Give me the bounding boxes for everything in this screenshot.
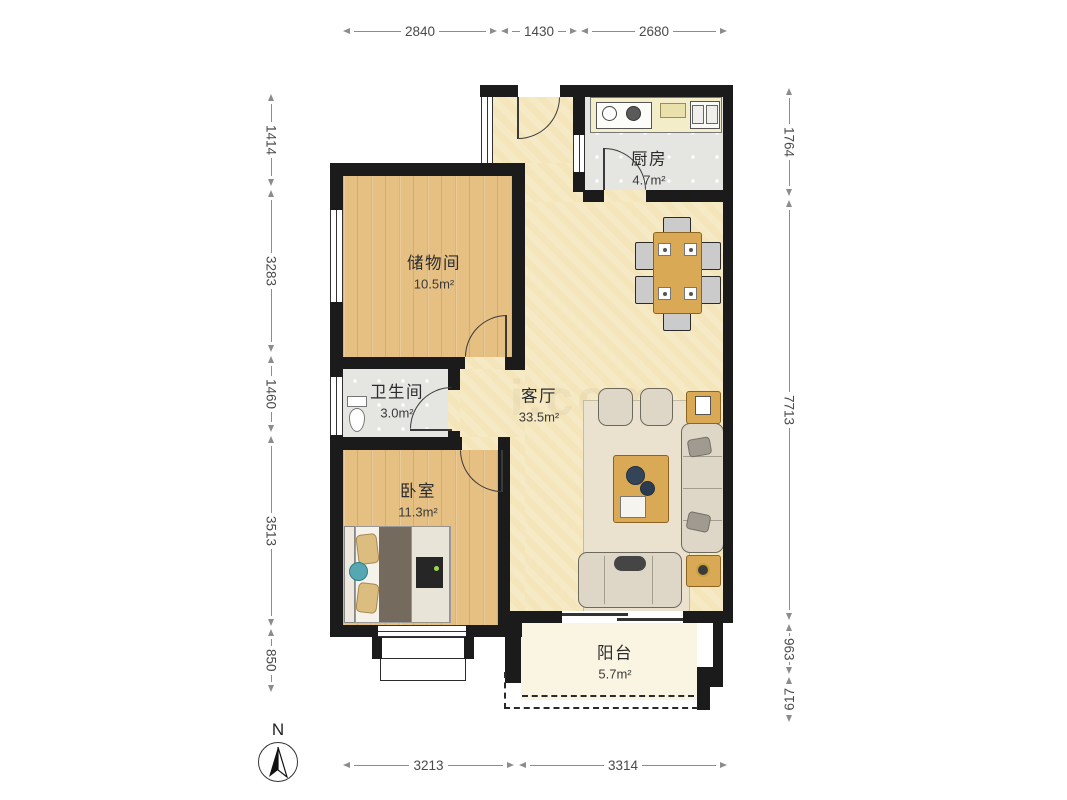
- arrow-up-icon: [786, 200, 792, 207]
- hallway-floor: [510, 437, 525, 611]
- wall: [512, 163, 525, 370]
- dimension-value: 1414: [264, 125, 279, 155]
- bay-window-line: [382, 658, 464, 659]
- wall: [330, 369, 343, 377]
- wall: [330, 163, 512, 176]
- dimension-value: 1430: [524, 24, 554, 39]
- wall: [505, 637, 521, 683]
- pillow: [355, 533, 379, 565]
- arrow-up-icon: [786, 624, 792, 631]
- arrow-down-icon: [268, 425, 274, 432]
- dimension-value: 1764: [782, 127, 797, 157]
- arrow-left-icon: [343, 28, 350, 34]
- stool: [349, 562, 368, 581]
- arrow-up-icon: [268, 629, 274, 636]
- window: [481, 97, 493, 163]
- wall: [573, 172, 585, 192]
- kitchen-hood: [660, 103, 686, 118]
- wall: [560, 85, 733, 97]
- room-area: 3.0m²: [370, 404, 424, 422]
- wall: [583, 190, 604, 202]
- entrance-doorway: [518, 85, 560, 97]
- sofa-cushion-line: [683, 456, 722, 457]
- dimension-value: 7713: [782, 395, 797, 425]
- dimension-value: 850: [264, 649, 279, 672]
- bowl: [696, 563, 710, 577]
- wall: [683, 611, 733, 623]
- plate: [684, 287, 697, 300]
- doorway: [604, 190, 646, 202]
- arrow-right-icon: [507, 762, 514, 768]
- dimension-left-1: 1414: [263, 94, 279, 186]
- wall: [464, 637, 474, 659]
- bed-blanket: [379, 527, 411, 622]
- dimension-top-3: 2680: [581, 24, 727, 38]
- room-area: 4.7m²: [631, 171, 667, 189]
- doorway: [462, 437, 502, 450]
- arrow-down-icon: [268, 179, 274, 186]
- loveseat-tray: [614, 556, 646, 571]
- dimension-value: 3213: [413, 758, 443, 773]
- dimension-top-1: 2840: [343, 24, 497, 38]
- north-label: N: [258, 720, 298, 742]
- dimension-value: 617: [782, 688, 797, 711]
- room-label-bedroom: 卧室 11.3m²: [398, 480, 438, 521]
- wall: [330, 625, 378, 637]
- room-area: 10.5m²: [407, 275, 461, 293]
- room-name: 厨房: [631, 148, 667, 171]
- tv: [416, 557, 443, 588]
- wall: [573, 97, 585, 135]
- wall: [697, 667, 723, 687]
- dimension-right-3: 963: [781, 624, 797, 674]
- dimension-right-4: 617: [781, 677, 797, 712]
- room-label-living: 客厅 33.5m²: [519, 385, 559, 426]
- dimension-value: 2840: [405, 24, 435, 39]
- room-name: 客厅: [519, 385, 559, 408]
- wall: [330, 357, 465, 369]
- room-area: 5.7m²: [597, 665, 633, 683]
- arrow-down-icon: [268, 619, 274, 626]
- balcony-dashed-edge: [522, 695, 694, 697]
- room-label-balcony: 阳台 5.7m²: [597, 642, 633, 683]
- wall: [697, 687, 710, 710]
- room-name: 阳台: [597, 642, 633, 665]
- room-name: 卧室: [398, 480, 438, 503]
- dining-chair: [699, 242, 721, 270]
- wall: [448, 357, 460, 390]
- north-arrow-icon: [266, 746, 290, 778]
- wall: [330, 437, 462, 450]
- wall: [723, 85, 733, 623]
- tea-tray: [620, 496, 646, 518]
- wall: [330, 302, 343, 357]
- loveseat-cushion-line: [652, 556, 653, 604]
- arrow-left-icon: [343, 762, 350, 768]
- window: [573, 135, 585, 172]
- dimension-bottom-2: 3314: [519, 758, 727, 772]
- floor-plan: i.com: [0, 0, 1067, 800]
- plant-pot: [640, 481, 655, 496]
- dimension-value: 963: [782, 638, 797, 661]
- dimension-right-2: 7713: [781, 200, 797, 620]
- room-label-bathroom: 卫生间 3.0m²: [370, 381, 424, 422]
- arrow-down-icon: [786, 189, 792, 196]
- dimension-value: 3283: [264, 256, 279, 286]
- arrow-left-icon: [501, 28, 508, 34]
- armchair: [640, 388, 673, 426]
- room-label-storage: 储物间 10.5m²: [407, 252, 461, 293]
- dimension-top-2: 1430: [501, 24, 577, 38]
- dimension-value: 2680: [639, 24, 669, 39]
- plate: [658, 287, 671, 300]
- wall: [646, 190, 733, 202]
- window: [330, 210, 343, 302]
- sink-basin: [692, 105, 704, 124]
- pillow: [355, 582, 379, 614]
- toilet: [347, 396, 367, 407]
- arrow-up-icon: [268, 94, 274, 101]
- arrow-up-icon: [268, 356, 274, 363]
- wall: [498, 611, 522, 637]
- sink-basin: [706, 105, 718, 124]
- bay-window: [380, 637, 466, 681]
- wall: [330, 163, 343, 210]
- dimension-value: 1460: [264, 379, 279, 409]
- dimension-left-5: 850: [263, 629, 279, 692]
- dimension-value: 3314: [608, 758, 638, 773]
- arrow-right-icon: [720, 28, 727, 34]
- compass-circle: [258, 742, 298, 782]
- cooktop-burner: [626, 106, 641, 121]
- dimension-left-3: 1460: [263, 356, 279, 432]
- arrow-down-icon: [268, 685, 274, 692]
- room-name: 储物间: [407, 252, 461, 275]
- window: [330, 377, 343, 435]
- wall: [372, 637, 382, 659]
- arrow-down-icon: [786, 667, 792, 674]
- arrow-up-icon: [268, 436, 274, 443]
- sofa-cushion-line: [683, 488, 722, 489]
- arrow-up-icon: [786, 677, 792, 684]
- wall: [330, 435, 343, 637]
- plate: [658, 243, 671, 256]
- plate: [684, 243, 697, 256]
- arrow-right-icon: [490, 28, 497, 34]
- compass: N: [258, 720, 298, 794]
- arrow-left-icon: [581, 28, 588, 34]
- tv-light: [434, 566, 439, 571]
- wall: [713, 623, 723, 669]
- arrow-right-icon: [720, 762, 727, 768]
- bathroom-door-leaf: [410, 429, 452, 431]
- arrow-up-icon: [786, 88, 792, 95]
- dining-chair: [699, 276, 721, 304]
- armchair: [598, 388, 633, 426]
- loveseat-cushion-line: [604, 556, 605, 604]
- balcony-dashed-edge: [504, 707, 698, 709]
- dimension-right-1: 1764: [781, 88, 797, 196]
- sliding-door-panel: [617, 618, 683, 621]
- dimension-left-4: 3513: [263, 436, 279, 626]
- arrow-down-icon: [786, 715, 792, 722]
- wall: [480, 85, 518, 97]
- sliding-door-panel: [562, 613, 628, 616]
- dimension-value: 3513: [264, 516, 279, 546]
- room-area: 33.5m²: [519, 408, 559, 426]
- balcony-dashed-edge: [504, 672, 506, 709]
- window: [378, 625, 466, 637]
- room-label-kitchen: 厨房 4.7m²: [631, 148, 667, 189]
- magazine: [695, 396, 711, 415]
- cooktop-burner: [602, 106, 617, 121]
- arrow-down-icon: [786, 613, 792, 620]
- dimension-left-2: 3283: [263, 190, 279, 352]
- arrow-up-icon: [268, 190, 274, 197]
- dimension-bottom-1: 3213: [343, 758, 514, 772]
- arrow-right-icon: [570, 28, 577, 34]
- arrow-down-icon: [268, 345, 274, 352]
- room-area: 11.3m²: [398, 503, 438, 521]
- room-name: 卫生间: [370, 381, 424, 404]
- arrow-left-icon: [519, 762, 526, 768]
